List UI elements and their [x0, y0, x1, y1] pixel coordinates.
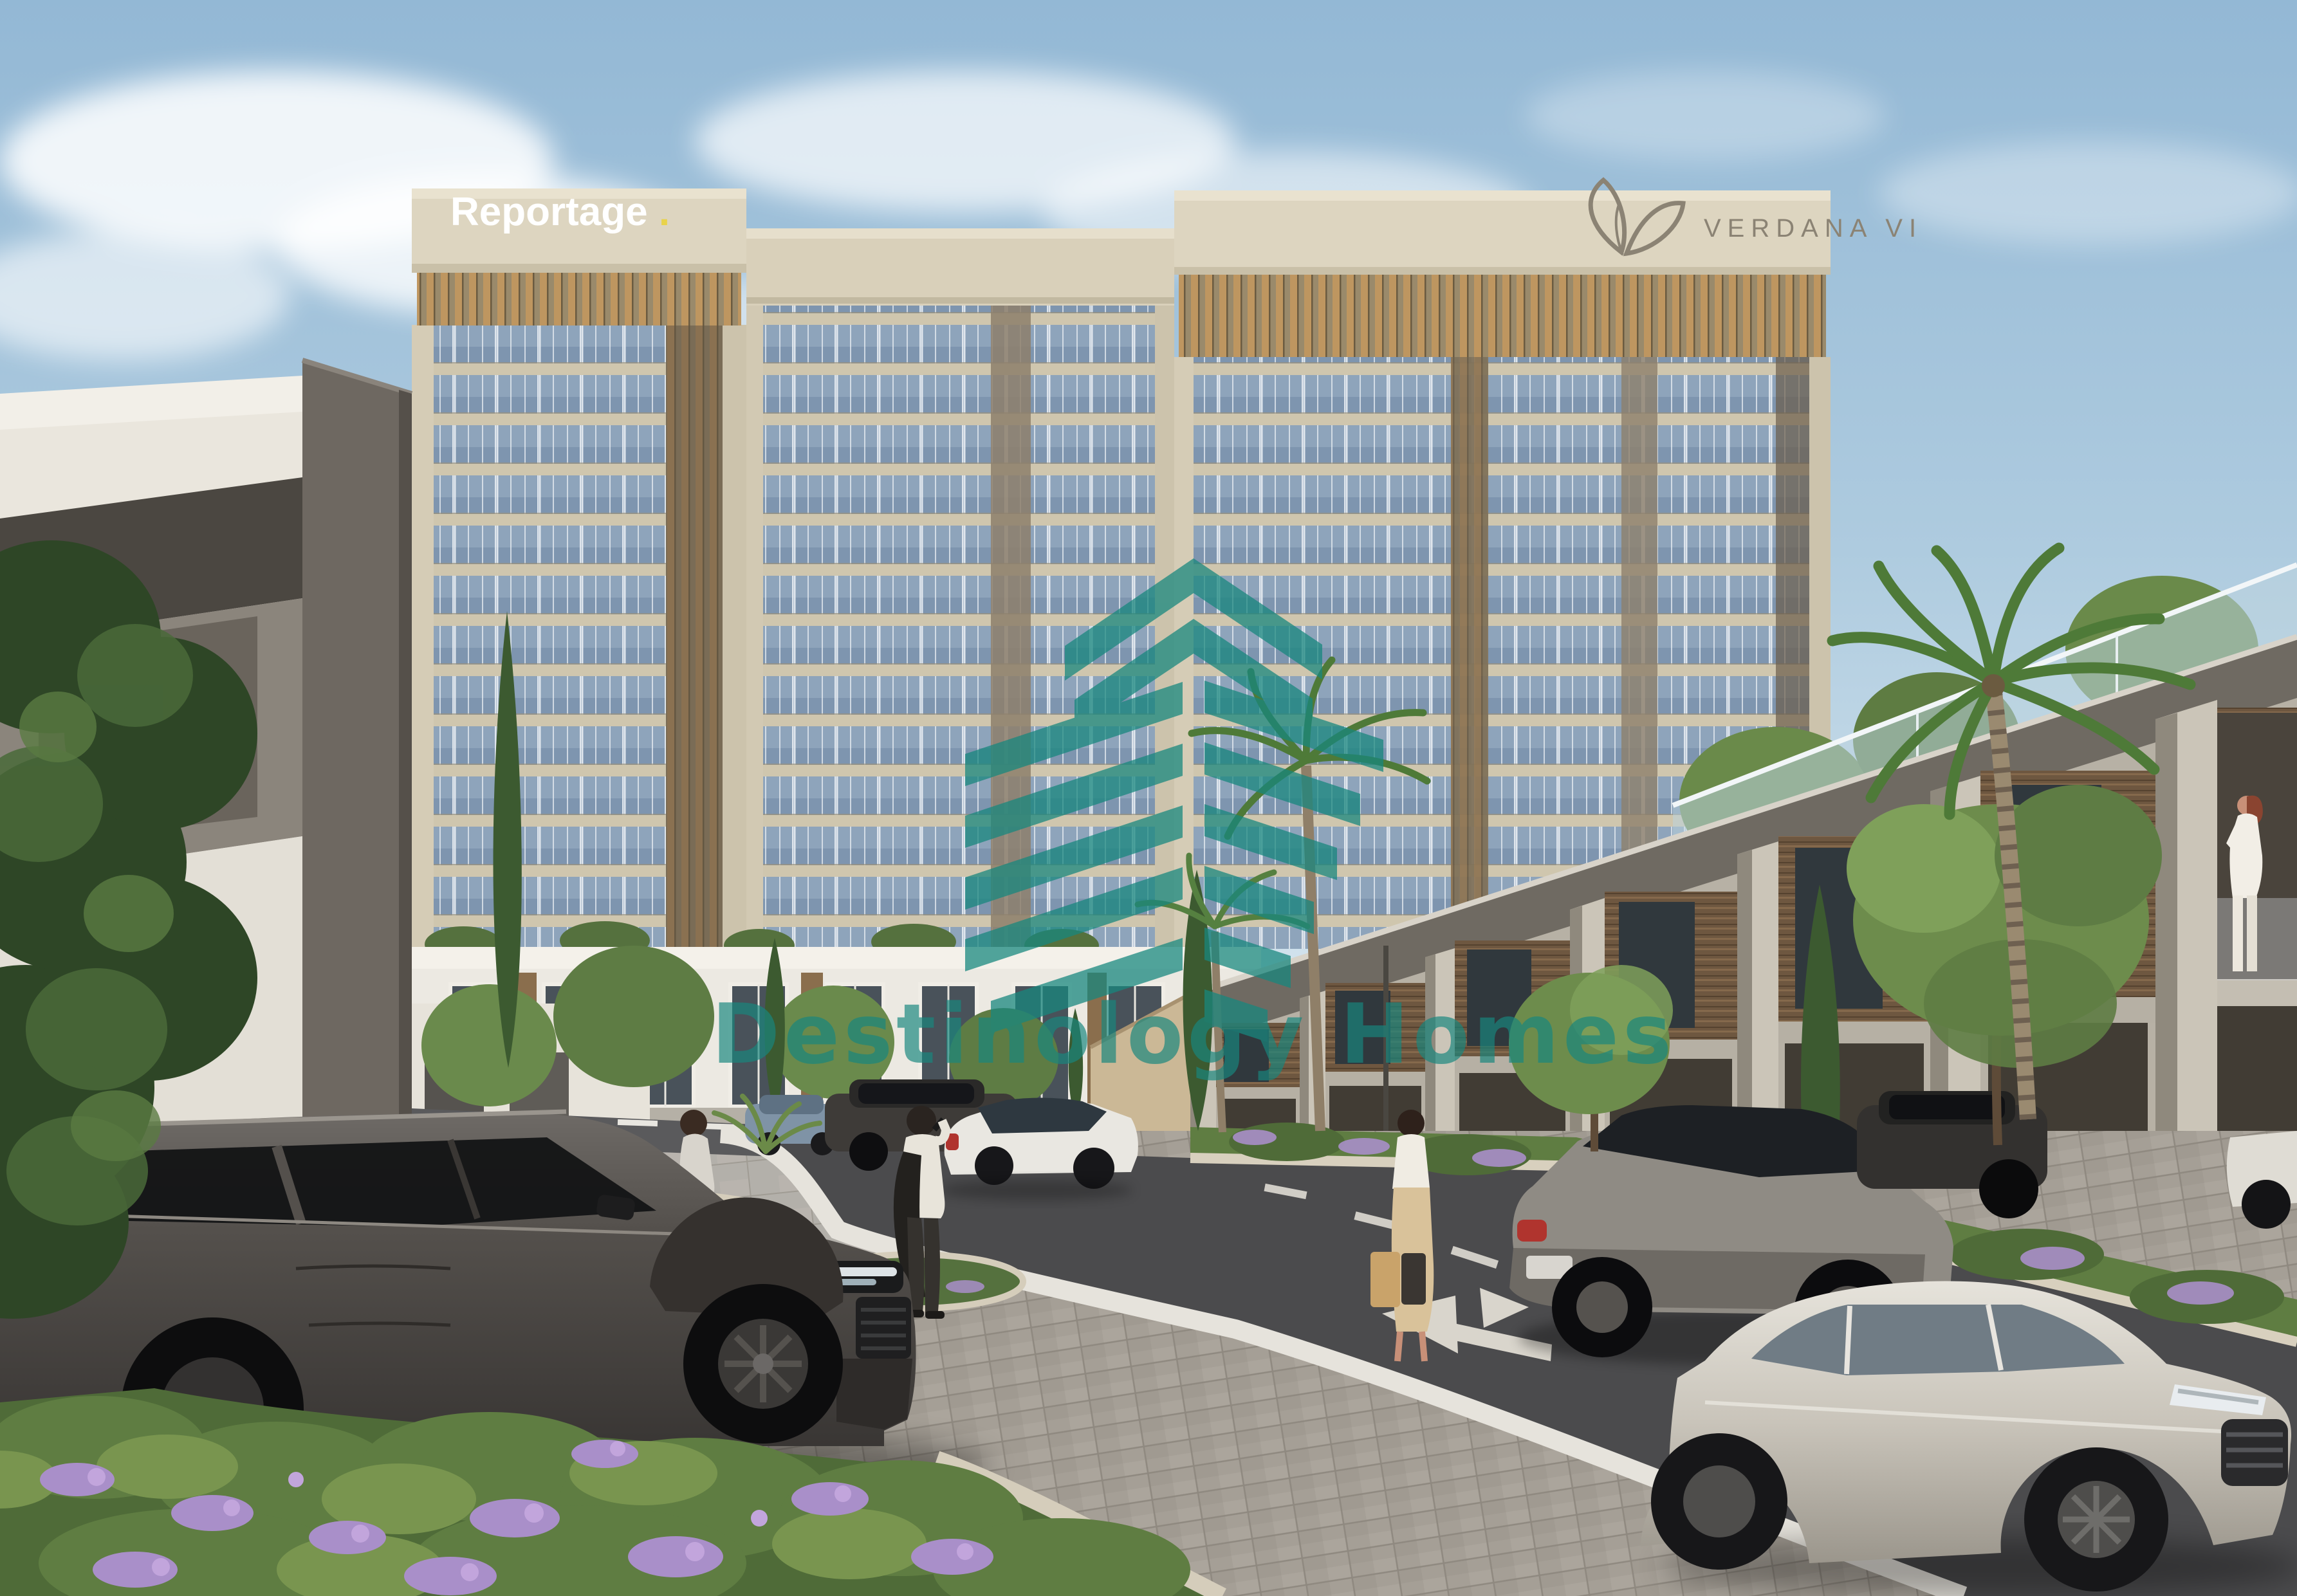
watermark-text: Destinology Homes: [712, 987, 1675, 1083]
reportage-word: Reportage: [450, 190, 648, 234]
shopping-bag-dark: [1401, 1253, 1426, 1305]
sedan-grille: [2221, 1419, 2288, 1486]
reportage-dot: .: [659, 190, 670, 234]
verdana-sign: VERDANA VI: [1704, 214, 1923, 243]
render-canvas: Reportage .: [0, 0, 2297, 1596]
reportage-sign: Reportage .: [450, 190, 670, 234]
shopping-bag: [1370, 1252, 1400, 1307]
wood-louver-crown-right: [1179, 275, 1826, 357]
architectural-render: Reportage .: [0, 0, 2297, 1596]
tower-reportage: Reportage .: [412, 188, 746, 968]
wood-louver-crown: [417, 273, 741, 326]
